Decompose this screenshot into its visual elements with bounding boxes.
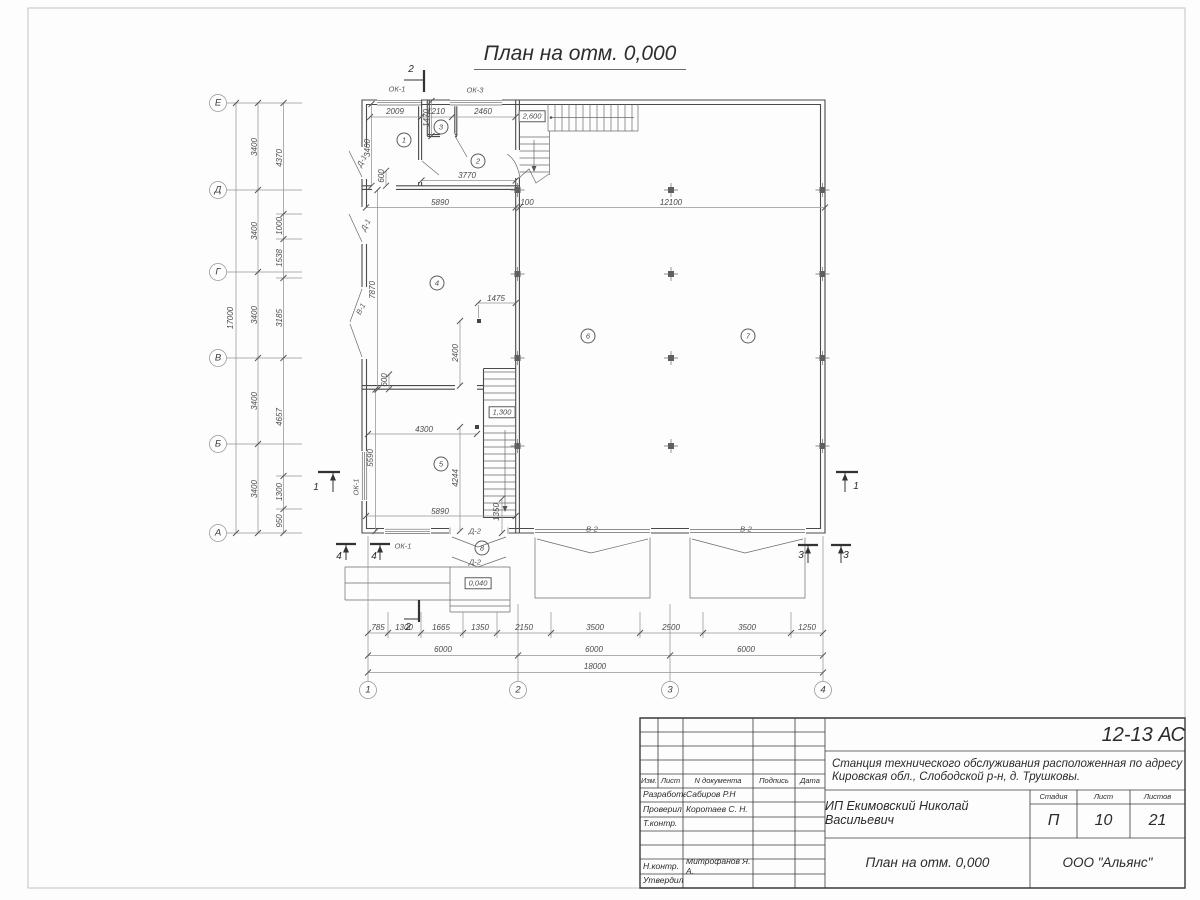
dimension-lines: [210, 95, 832, 699]
tb-role-checked: Проверил: [640, 802, 686, 817]
dim-label: 4300: [415, 426, 433, 434]
door-label: В-2: [740, 525, 752, 533]
axis-label: Г: [215, 267, 220, 277]
tb-sheets-value: 21: [1130, 804, 1185, 838]
dim-label: 6000: [585, 646, 603, 654]
drawing-sheet: План на отм. 0,000 170003400340034003400…: [0, 0, 1200, 900]
tb-col-sign: Подпись: [753, 774, 795, 788]
gate-leaders: [452, 537, 803, 567]
room-number: 3: [434, 120, 449, 135]
dim-label: 4370: [276, 149, 284, 167]
tb-col-doc: N документа: [683, 774, 753, 788]
dim-label: 2460: [474, 108, 492, 116]
dim-label: 4244: [452, 469, 460, 487]
section-marks: [318, 70, 858, 622]
tb-name-developed: Сабиров Р.Н: [683, 788, 756, 802]
tb-name-checked: Коротаев С. Н.: [683, 802, 756, 817]
tb-stage-value: П: [1030, 804, 1077, 838]
room-number: 2: [471, 154, 486, 169]
dim-label: 600: [381, 373, 389, 386]
tb-col-izm: Изм.: [640, 774, 658, 788]
dim-label: 5590: [367, 449, 375, 467]
section-label: 2: [408, 65, 414, 75]
dim-label: 1350: [493, 503, 501, 521]
room-number: 6: [581, 329, 596, 344]
tb-sheet-label: Лист: [1077, 790, 1130, 804]
dim-label: 1250: [798, 624, 816, 632]
axis-label: Б: [215, 439, 221, 449]
window-label: ОК-1: [389, 85, 406, 93]
elevation-mark: 1,300: [489, 406, 516, 418]
section-label: 3: [843, 551, 849, 561]
detail-lines: [345, 100, 805, 612]
door-label: Д-2: [469, 527, 481, 535]
columns: [475, 183, 830, 453]
axis-label: Е: [215, 98, 221, 108]
dim-label: 100: [520, 199, 533, 207]
axis-label: В: [215, 353, 221, 363]
dim-label: 1475: [487, 295, 505, 303]
dim-label: 6000: [737, 646, 755, 654]
dim-label: 12100: [660, 199, 682, 207]
stair-treads: [484, 426, 516, 510]
walls: [362, 100, 825, 533]
room-number: 4: [430, 276, 445, 291]
window-label: ОК-3: [467, 86, 484, 94]
annex: [345, 567, 510, 612]
dim-label: 600: [378, 169, 386, 182]
room-number: 5: [434, 457, 449, 472]
axis-label: А: [215, 528, 221, 538]
tb-stage-label: Стадия: [1030, 790, 1077, 804]
dim-label: 5890: [431, 199, 449, 207]
dim-label: 950: [276, 514, 284, 527]
page-title-text: План на отм. 0,000: [474, 42, 687, 70]
dim-label: 2500: [662, 624, 680, 632]
dim-label: 1000: [276, 217, 284, 235]
window-label: ОК-1: [395, 542, 412, 550]
dim-label: 3400: [251, 138, 259, 156]
door-label: Д-2: [469, 558, 481, 566]
dim-label: 3400: [251, 392, 259, 410]
dim-label: 3400: [251, 222, 259, 240]
dim-label: 18000: [584, 663, 606, 671]
axis-label: 1: [365, 685, 370, 695]
dim-label: 17000: [227, 307, 235, 329]
section-label: 1: [853, 482, 859, 492]
tb-project-name: Станция технического обслуживания распол…: [825, 751, 1192, 790]
elevation-mark: 2,600: [519, 110, 546, 122]
dim-label: 1350: [471, 624, 489, 632]
wall-openings: [361, 98, 807, 534]
tb-sheet-value: 10: [1077, 804, 1130, 838]
dim-label: 3770: [458, 172, 476, 180]
dimension-ticks: [233, 98, 828, 676]
axis-label: 3: [667, 685, 672, 695]
section-label: 4: [336, 552, 342, 562]
stair-break-line: [519, 140, 549, 183]
tb-project-line1: Станция технического обслуживания распол…: [832, 758, 1182, 771]
dim-label: 785: [371, 624, 384, 632]
dim-label: 3400: [251, 480, 259, 498]
tb-col-list: Лист: [658, 774, 683, 788]
tb-project-line2: Кировская обл., Слободской р-н, д. Трушк…: [832, 771, 1080, 784]
dim-label: 1300: [276, 483, 284, 501]
dim-label: 1538: [276, 249, 284, 267]
porches: [535, 538, 805, 599]
dim-label: 3185: [276, 309, 284, 327]
door-swings: [349, 136, 520, 357]
dim-label: 3400: [251, 306, 259, 324]
dim-label: 2400: [452, 344, 460, 362]
door-label: В-2: [586, 525, 598, 533]
dim-label: 3500: [586, 624, 604, 632]
axis-label: Д: [215, 185, 222, 195]
section-label: 2: [405, 623, 411, 633]
dim-label: 6000: [434, 646, 452, 654]
axis-label: 4: [820, 685, 825, 695]
tb-col-date: Дата: [795, 774, 825, 788]
tb-sheets-label: Листов: [1130, 790, 1185, 804]
tb-role-tcontrol: Т.контр.: [640, 817, 686, 831]
elevation-mark: 0,040: [465, 577, 492, 589]
tb-client: ИП Екимовский Николай Васильевич: [825, 790, 1030, 838]
stair-arrows: [503, 116, 553, 512]
section-label: 1: [313, 483, 319, 493]
tb-role-ncontrol: Н.контр.: [640, 859, 686, 874]
dim-label: 4657: [276, 408, 284, 426]
dim-label: 7870: [369, 281, 377, 299]
axis-label: 2: [515, 685, 520, 695]
window-label: ОК-1: [352, 479, 360, 496]
section-label: 4: [371, 552, 377, 562]
dim-label: 5890: [431, 508, 449, 516]
tb-drawing-title: План на отм. 0,000: [825, 838, 1030, 888]
dim-label: 3400: [364, 139, 372, 157]
dim-label: 3500: [738, 624, 756, 632]
tb-role-developed: Разработал: [640, 788, 686, 802]
tb-organization: ООО "Альянс": [1030, 838, 1185, 888]
dim-label: 2009: [386, 108, 404, 116]
dim-label: 2150: [515, 624, 533, 632]
room-number: 8: [475, 541, 490, 556]
section-label: 3: [798, 551, 804, 561]
dim-label: 1470: [423, 109, 431, 127]
room-number: 1: [397, 133, 412, 148]
dim-label: 1665: [432, 624, 450, 632]
tb-role-approved: Утвердил: [640, 874, 686, 888]
room-number: 7: [741, 329, 756, 344]
tb-document-code: 12-13 АС: [825, 718, 1200, 751]
page-title: План на отм. 0,000: [450, 42, 710, 70]
tb-name-ncontrol: Митрофанов Я. А.: [683, 859, 756, 874]
